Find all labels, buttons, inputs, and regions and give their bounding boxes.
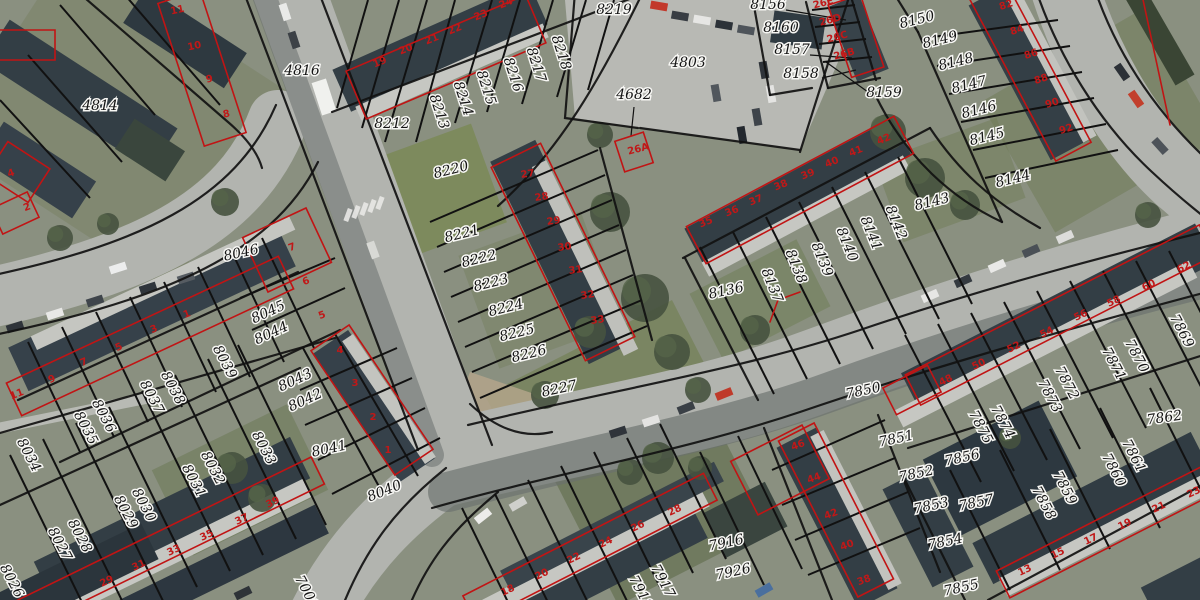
house-number-label: 33: [590, 314, 605, 327]
parcel-label: 8156: [750, 0, 786, 13]
parcel-label: 8157: [774, 42, 810, 58]
house-number-label: 31: [568, 264, 583, 277]
parcel-label: 7871: [1098, 345, 1129, 384]
house-number-label: 30: [557, 241, 572, 254]
parcel-label: 8215: [473, 68, 499, 107]
cadastral-aerial-map[interactable]: 4814481682128213821482158216821782188219…: [0, 0, 1200, 600]
parcel-label: 8149: [921, 28, 960, 52]
parcel-label: 8217: [523, 45, 549, 84]
house-number-label: 5: [317, 309, 327, 322]
house-number-label: 3: [352, 378, 359, 389]
parcel-label: 7862: [1146, 408, 1184, 429]
house-number-label: 6: [301, 275, 311, 288]
parcel-label: 7869: [1166, 312, 1197, 351]
parcel-label: 8159: [866, 85, 902, 101]
parcel-label: 8213: [426, 92, 452, 131]
house-number-label: 29: [546, 215, 561, 228]
house-number-label: 28: [534, 191, 549, 204]
parcel-label: 8219: [596, 2, 632, 18]
parcel-label: 8214: [450, 79, 476, 118]
parcel-label: 4814: [81, 98, 118, 114]
parcel-label: 8041: [310, 438, 348, 461]
house-number-label: 32: [580, 289, 595, 302]
parcel-label: 8141: [857, 214, 885, 253]
house-number-label: 11: [9, 387, 26, 402]
parcel-label: 8158: [783, 66, 819, 82]
parcel-label: 4682: [615, 87, 652, 103]
map-canvas[interactable]: 4814481682128213821482158216821782188219…: [0, 0, 1200, 600]
parcel-label: 4803: [669, 55, 706, 71]
parcel-label: 8212: [374, 116, 410, 132]
house-number-label: 1: [385, 445, 392, 456]
parcel-label: 7926: [714, 561, 752, 584]
house-number-label: 4: [337, 345, 344, 356]
parcel-label: 8160: [763, 20, 799, 36]
house-number-label: 2: [22, 201, 32, 214]
parcel-label: 8140: [833, 225, 861, 264]
parcel-label: 8148: [937, 50, 976, 74]
parcel-label: 7855: [942, 577, 980, 600]
house-number-label: 2: [370, 412, 377, 423]
house-number-label: 26A: [626, 141, 650, 157]
parcel-label: 8039: [209, 343, 240, 382]
parcel-label: 4816: [283, 63, 320, 79]
parcel-label: 8147: [950, 73, 989, 97]
house-number-label: 27: [520, 168, 535, 181]
parcel-label: 8216: [500, 55, 526, 94]
